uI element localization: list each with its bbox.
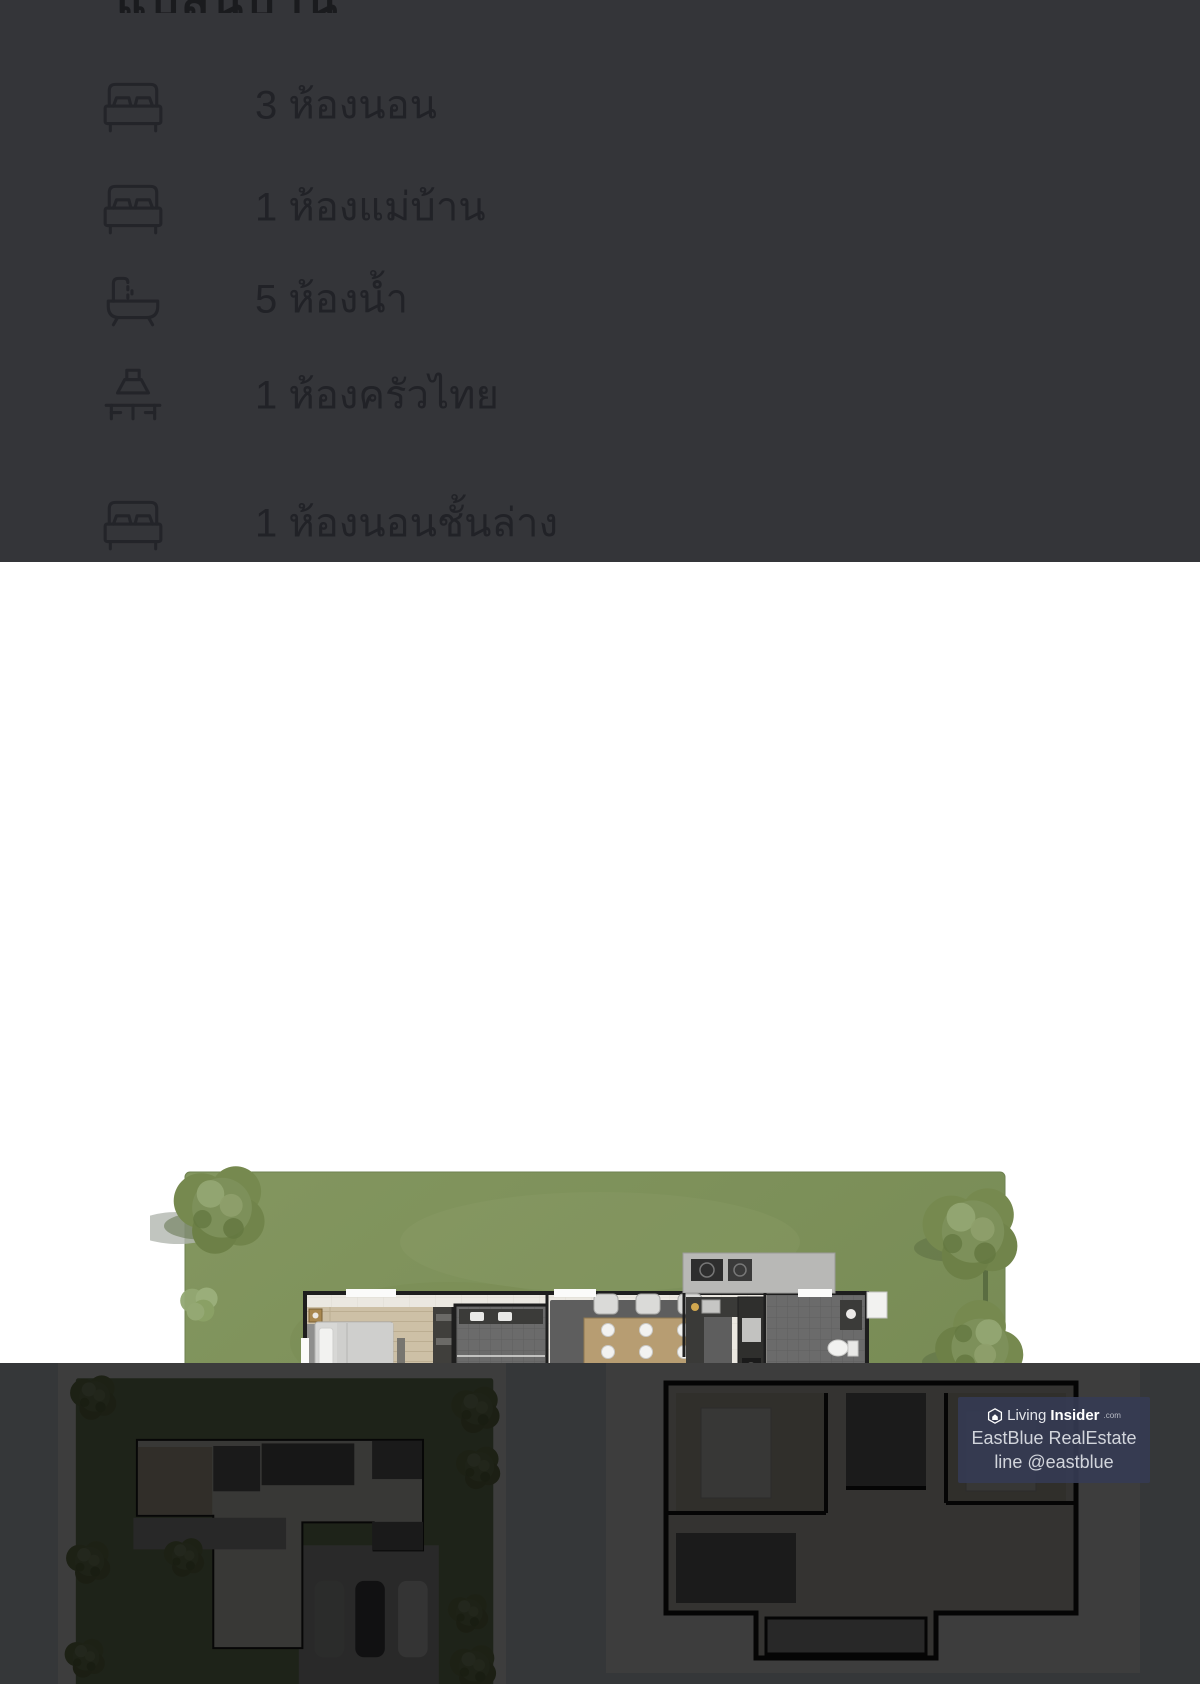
feature-label: 3 ห้องนอน: [255, 73, 437, 137]
brand-regular: Living: [1007, 1408, 1046, 1424]
real-estate-floorplan-post: แปลนบ้าน 3 ห้องนอน 1 ห้องแม่บ้าน 5 ห้องน…: [0, 0, 1200, 1684]
watermark-line2: EastBlue RealEstate: [971, 1428, 1136, 1449]
livinginsider-cube-icon: [987, 1408, 1003, 1424]
watermark-line3: line @eastblue: [994, 1452, 1113, 1473]
livinginsider-logo: LivingInsider.com: [987, 1408, 1121, 1425]
feature-row-downstairs-bedroom: 1 ห้องนอนชั้นล่าง: [100, 494, 1000, 554]
cropped-page-title-text: แปลนบ้าน: [116, 0, 339, 13]
double-bed-icon: [100, 178, 166, 236]
feature-label: 1 ห้องแม่บ้าน: [255, 175, 486, 239]
double-bed-icon: [100, 76, 166, 134]
feature-label: 1 ห้องครัวไทย: [255, 363, 499, 427]
brand-bold: Insider: [1050, 1408, 1099, 1424]
cropped-page-title: แปลนบ้าน: [116, 0, 339, 13]
brand-suffix: .com: [1104, 1408, 1121, 1424]
floorplan-section: [0, 562, 1200, 1363]
bathtub-icon: [100, 270, 166, 328]
feature-list-section: แปลนบ้าน 3 ห้องนอน 1 ห้องแม่บ้าน 5 ห้องน…: [0, 0, 1200, 562]
feature-row-bathrooms: 5 ห้องน้ำ: [100, 270, 1000, 330]
feature-label: 1 ห้องนอนชั้นล่าง: [255, 491, 558, 555]
entry-canopy: [683, 1253, 835, 1293]
dimmed-thumbnail-siteplan[interactable]: [58, 1363, 506, 1684]
feature-row-maid-room: 1 ห้องแม่บ้าน: [100, 178, 1000, 238]
feature-row-thai-kitchen: 1 ห้องครัวไทย: [100, 366, 1000, 426]
kitchen-hood-icon: [100, 366, 166, 424]
double-bed-icon: [100, 494, 166, 552]
side-step: [867, 1292, 887, 1318]
next-images-strip: LivingInsider.com EastBlue RealEstate li…: [0, 1363, 1200, 1684]
feature-label: 5 ห้องน้ำ: [255, 267, 408, 331]
watermark-panel: LivingInsider.com EastBlue RealEstate li…: [958, 1397, 1150, 1483]
feature-row-bedrooms: 3 ห้องนอน: [100, 76, 1000, 136]
